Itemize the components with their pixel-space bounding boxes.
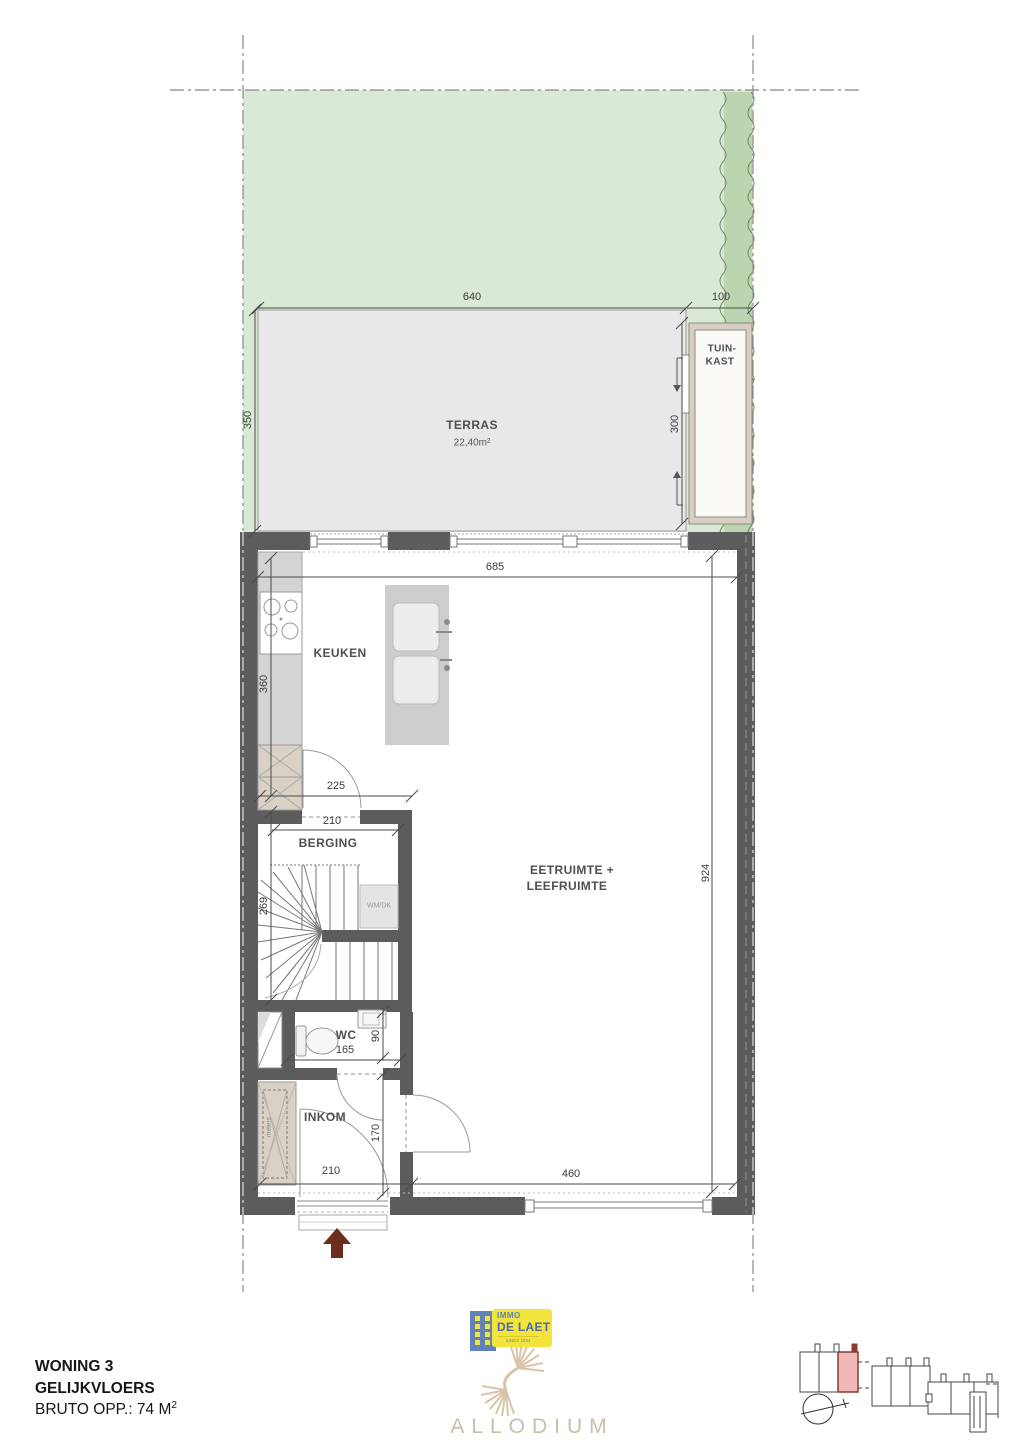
sink-basin: [393, 656, 439, 704]
label-keuken: KEUKEN: [313, 646, 366, 660]
window-top-kitchen: [310, 532, 388, 550]
dim-living-depth: 924: [700, 864, 712, 882]
dim-interior-width: 685: [486, 561, 504, 573]
tall-cabinet: [258, 745, 302, 810]
closet-next-to-wc: [258, 1012, 282, 1068]
label-wc: WC: [336, 1028, 357, 1042]
floor-plan-drawing: [0, 0, 1024, 1448]
living-door-opening: [400, 1095, 413, 1152]
allodium-wordmark: ALLODIUM: [450, 1415, 613, 1439]
dim-wc-width: 165: [336, 1044, 354, 1056]
highlighted-unit: [838, 1352, 858, 1392]
dim-inkom-depth: 170: [370, 1124, 382, 1142]
toilet-icon: [296, 1026, 338, 1056]
dim-berging-depth: 269: [258, 897, 270, 915]
north-compass-icon: [801, 1394, 849, 1424]
immo-logo-top: IMMO: [497, 1311, 552, 1320]
plan-title-line2: GELIJKVLOERS: [35, 1378, 177, 1400]
dim-window-width: 460: [562, 1168, 580, 1180]
sliding-door-top-living: [450, 532, 688, 550]
label-tuinkast-2: KAST: [706, 356, 735, 369]
label-terras: TERRAS: [446, 418, 498, 432]
kitchen-island: [385, 585, 452, 745]
immo-de-laet-logo: IMMO DE LAET SINDS 1894: [492, 1309, 552, 1347]
window-bottom-living: [525, 1197, 712, 1215]
sink-basin: [393, 603, 439, 651]
floor-plan-page: { "plan": { "rooms": { "terras": "TERRAS…: [0, 0, 1024, 1448]
immo-logo-name: DE LAET: [497, 1320, 552, 1334]
label-living-1: EETRUIMTE +: [530, 863, 614, 877]
dim-wc-depth: 90: [370, 1030, 382, 1042]
title-block: WONING 3 GELIJKVLOERS BRUTO OPP.: 74 M2: [35, 1356, 177, 1421]
entrance-arrow-icon: [323, 1228, 351, 1258]
plan-title-line1: WONING 3: [35, 1356, 177, 1378]
label-inkom: INKOM: [304, 1110, 346, 1124]
label-living-2: LEEFRUIMTE: [527, 879, 608, 893]
dim-strip: 100: [712, 291, 730, 303]
dim-berging-width: 210: [323, 815, 341, 827]
dim-keuken-depth: 360: [258, 675, 270, 693]
wc-door-opening: [337, 1068, 383, 1080]
front-door-opening: [295, 1197, 390, 1230]
dim-terras-depth: 350: [242, 411, 254, 429]
meter-cabinet: [258, 1082, 296, 1185]
immo-logo-tagline: SINDS 1894: [497, 1336, 539, 1343]
dim-terras-width: 640: [463, 291, 481, 303]
dim-inkom-width: 210: [322, 1165, 340, 1177]
allodium-shell-icon: [481, 1342, 544, 1416]
dim-gate: 300: [669, 415, 681, 433]
plan-title-line3: BRUTO OPP.: 74 M2: [35, 1399, 177, 1421]
label-terras-area: 22,40m²: [454, 438, 491, 449]
label-berging: BERGING: [299, 836, 358, 850]
cooktop-icon: [260, 592, 302, 654]
label-wmdk: WM/DK: [367, 903, 391, 910]
faucet-icon: [444, 619, 450, 625]
dim-keuken-opening: 225: [327, 780, 345, 792]
label-meters: meters: [266, 1117, 273, 1137]
label-tuinkast-1: TUIN-: [708, 343, 737, 356]
faucet-icon: [444, 665, 450, 671]
